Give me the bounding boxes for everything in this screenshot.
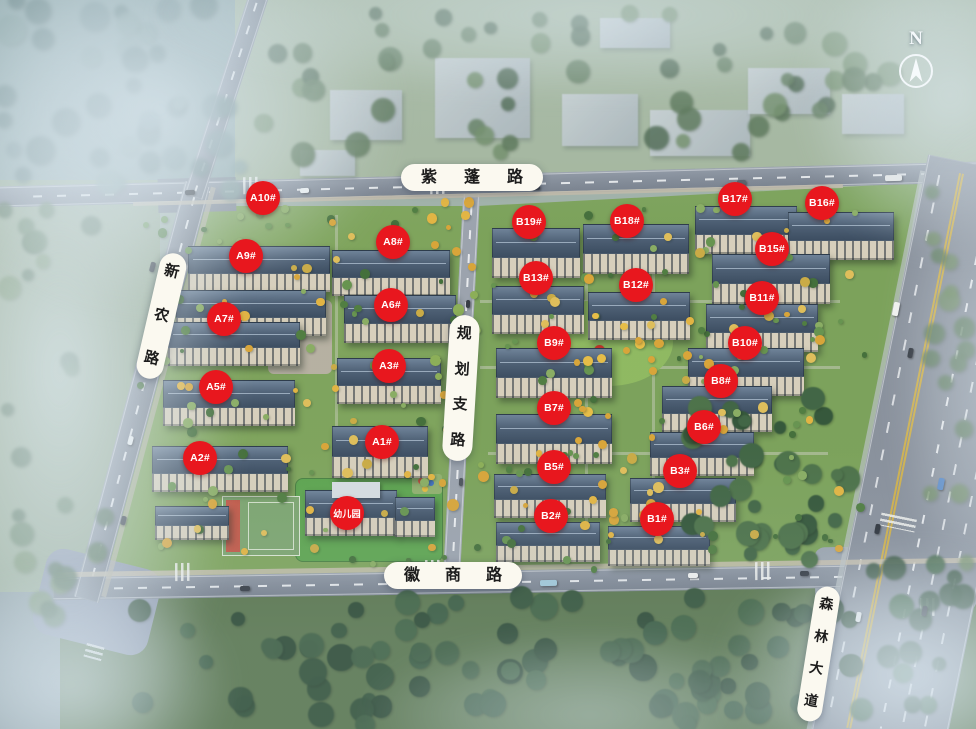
building-badge-b18[interactable]: B18# — [610, 204, 644, 238]
building-badge-幼儿园[interactable]: 幼儿园 — [330, 496, 364, 530]
building-badge-a10[interactable]: A10# — [246, 181, 280, 215]
north-arrow-icon — [897, 52, 935, 90]
road-label-char: 路 — [450, 433, 466, 449]
road-label-char: 林 — [813, 630, 829, 646]
site-plan-rendering: 紫 蓬 路 新 农 路 规 划 支 路 徽 商 路 森 林 大 道 A10#A9… — [0, 0, 976, 729]
road-label-char: 大 — [808, 662, 824, 678]
road-label-char: 路 — [486, 568, 502, 584]
road-label-char: 道 — [803, 694, 819, 710]
building-badge-a9[interactable]: A9# — [229, 239, 263, 273]
building-badge-b2[interactable]: B2# — [534, 499, 568, 533]
building-badge-a6[interactable]: A6# — [374, 288, 408, 322]
road-label-char: 森 — [818, 598, 834, 614]
road-label-char: 紫 — [421, 170, 437, 186]
road-label-char: 规 — [456, 327, 472, 343]
building-badge-b6[interactable]: B6# — [687, 410, 721, 444]
road-label-char: 新 — [163, 264, 181, 282]
building-badge-a8[interactable]: A8# — [376, 225, 410, 259]
building-badge-b15[interactable]: B15# — [755, 232, 789, 266]
road-label-char: 蓬 — [464, 170, 480, 186]
road-label-char: 路 — [142, 350, 160, 368]
building-badge-b19[interactable]: B19# — [512, 205, 546, 239]
road-label-huishang-lu: 徽 商 路 — [384, 562, 522, 589]
road-label-char: 商 — [445, 568, 461, 584]
building-badge-b16[interactable]: B16# — [805, 186, 839, 220]
building-badge-a7[interactable]: A7# — [207, 302, 241, 336]
road-label-char: 徽 — [404, 568, 420, 584]
road-label-char: 农 — [152, 307, 170, 325]
building-badge-b10[interactable]: B10# — [728, 326, 762, 360]
road-label-char: 支 — [452, 398, 468, 414]
building-badge-a5[interactable]: A5# — [199, 370, 233, 404]
building-badge-a2[interactable]: A2# — [183, 441, 217, 475]
road-label-char: 路 — [507, 170, 523, 186]
building-badge-b11[interactable]: B11# — [745, 281, 779, 315]
road-label-char: 划 — [454, 362, 470, 378]
building-badge-b5[interactable]: B5# — [537, 450, 571, 484]
building-badge-a1[interactable]: A1# — [365, 425, 399, 459]
building-badge-a3[interactable]: A3# — [372, 349, 406, 383]
north-label: N — [893, 28, 939, 50]
building-badge-b7[interactable]: B7# — [537, 391, 571, 425]
building-badge-b3[interactable]: B3# — [663, 454, 697, 488]
building-badge-b17[interactable]: B17# — [718, 182, 752, 216]
building-badge-b1[interactable]: B1# — [640, 502, 674, 536]
road-label-zipeng-lu: 紫 蓬 路 — [401, 164, 543, 191]
building-badge-b13[interactable]: B13# — [519, 261, 553, 295]
north-compass: N — [893, 28, 939, 94]
building-badge-b12[interactable]: B12# — [619, 268, 653, 302]
building-badge-b8[interactable]: B8# — [704, 364, 738, 398]
building-badge-b9[interactable]: B9# — [537, 326, 571, 360]
